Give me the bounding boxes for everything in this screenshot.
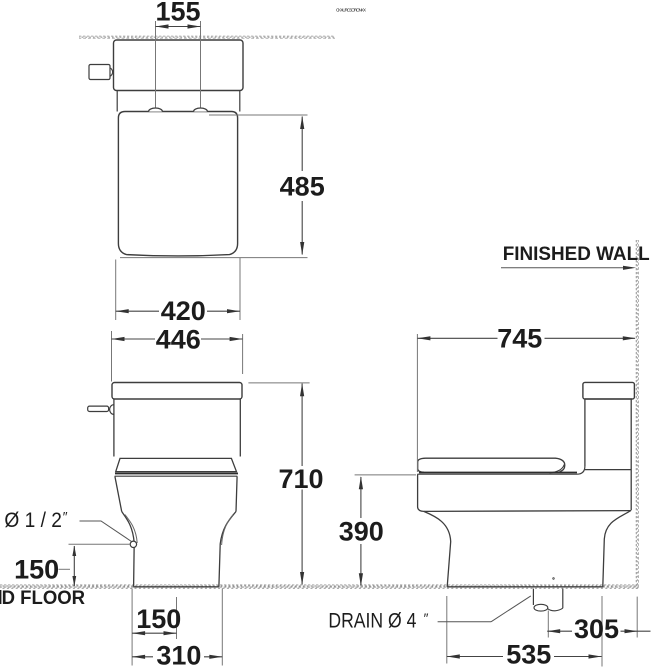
svg-text:150: 150	[136, 604, 181, 634]
svg-text:CKXURCSORONKX: CKXURCSORONKX	[336, 8, 366, 13]
svg-text:745: 745	[497, 323, 542, 353]
svg-text:DRAIN Ø 4: DRAIN Ø 4	[328, 609, 416, 632]
svg-text:150: 150	[14, 554, 59, 584]
svg-text:485: 485	[280, 171, 325, 201]
svg-text:420: 420	[161, 296, 206, 326]
svg-text:535: 535	[506, 640, 551, 670]
svg-text:390: 390	[339, 517, 384, 547]
svg-text:″: ″	[424, 611, 429, 626]
svg-text:D FLOOR: D FLOOR	[2, 587, 86, 609]
svg-text:310: 310	[156, 640, 201, 670]
svg-text:″: ″	[63, 510, 68, 525]
svg-text:155: 155	[155, 0, 200, 26]
svg-text:FINISHED WALL: FINISHED WALL	[503, 243, 650, 265]
svg-text:710: 710	[278, 464, 323, 494]
svg-text:305: 305	[574, 614, 619, 644]
svg-text:Ø 1 / 2: Ø 1 / 2	[4, 509, 62, 532]
svg-text:446: 446	[156, 325, 201, 355]
